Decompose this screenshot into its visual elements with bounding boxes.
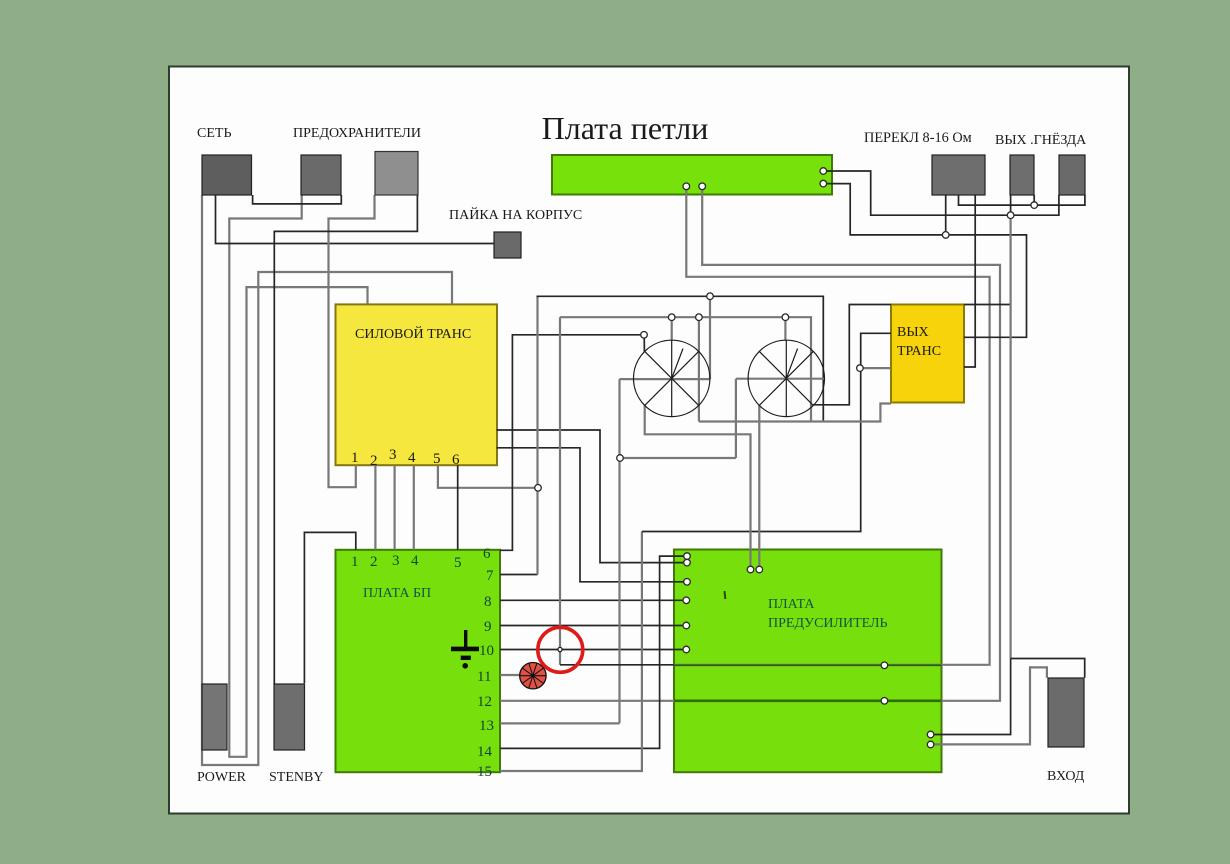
svg-text:СЕТЬ: СЕТЬ [197,126,231,141]
svg-text:2: 2 [370,554,378,570]
svg-text:POWER: POWER [197,770,247,785]
svg-text:ВЫХ .ГНЁЗДА: ВЫХ .ГНЁЗДА [995,131,1087,148]
svg-text:ПРЕДУСИЛИТЕЛЬ: ПРЕДУСИЛИТЕЛЬ [768,616,888,631]
svg-text:13: 13 [479,718,494,734]
svg-text:ТРАНС: ТРАНС [897,344,941,359]
svg-text:3: 3 [389,447,397,463]
svg-text:14: 14 [477,744,493,760]
svg-text:ПАЙКА НА КОРПУС: ПАЙКА НА КОРПУС [449,206,582,223]
svg-text:ПРЕДОХРАНИТЕЛИ: ПРЕДОХРАНИТЕЛИ [293,126,421,141]
svg-text:8: 8 [484,594,492,610]
svg-text:Плата петли: Плата петли [542,110,709,146]
svg-text:11: 11 [477,669,491,685]
svg-text:5: 5 [454,555,462,571]
svg-text:ПЛАТА: ПЛАТА [768,597,815,612]
svg-text:1: 1 [351,554,359,570]
svg-text:ПЛАТА БП: ПЛАТА БП [363,586,431,601]
svg-text:7: 7 [486,568,494,584]
svg-text:5: 5 [433,451,441,467]
svg-text:3: 3 [392,553,400,569]
svg-text:STENBY: STENBY [269,770,323,785]
svg-text:4: 4 [408,450,416,466]
svg-text:ВЫХ: ВЫХ [897,325,929,340]
svg-text:9: 9 [484,619,492,635]
svg-text:6: 6 [483,546,491,562]
svg-text:12: 12 [477,694,492,710]
svg-text:6: 6 [452,452,460,468]
svg-text:ПЕРЕКЛ 8-16 Ом: ПЕРЕКЛ 8-16 Ом [864,130,972,146]
svg-text:4: 4 [411,553,419,569]
svg-text:2: 2 [370,453,378,469]
svg-text:15: 15 [477,764,492,780]
svg-text:1: 1 [351,450,359,466]
svg-text:ВХОД: ВХОД [1047,769,1085,784]
svg-text:СИЛОВОЙ ТРАНС: СИЛОВОЙ ТРАНС [355,325,471,342]
svg-text:10: 10 [479,643,494,659]
